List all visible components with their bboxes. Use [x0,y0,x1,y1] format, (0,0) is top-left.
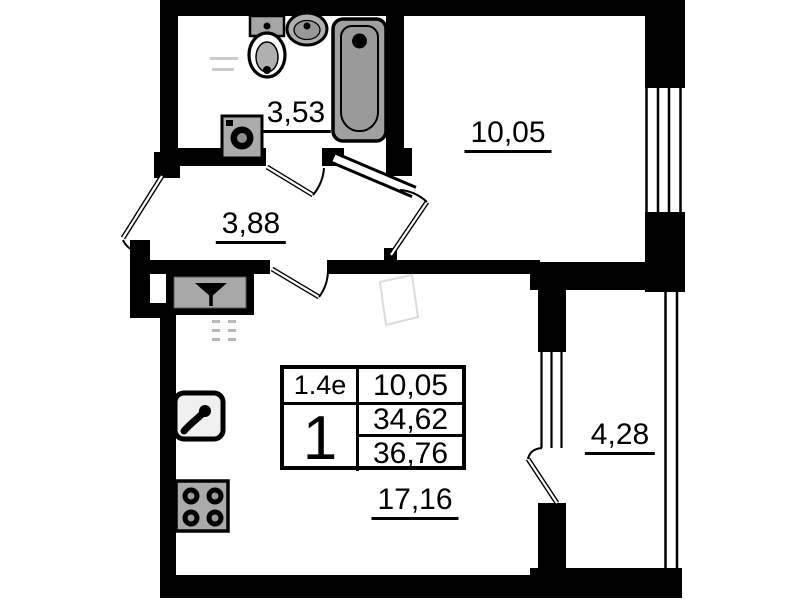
kitchen-sink-fixture [175,393,223,439]
bedroom-window [645,88,685,212]
table-cell-area-without-balcony: 34,62 [356,402,462,434]
balcony-window [538,352,566,448]
floor-plan: 3,53 10,05 3,88 17,16 4,28 1.4e 10,05 1 … [0,0,799,600]
apartment-info-table: 1.4e 10,05 1 34,62 36,76 [280,365,466,470]
table-cell-room-count: 1 [284,402,356,471]
living-room-door [272,269,328,297]
table-cell-plan-code: 1.4e [284,369,356,402]
room-label-bathroom: 3,53 [261,98,331,133]
room-label-hallway: 3,88 [216,209,286,244]
toilet-fixture [249,16,285,77]
room-label-living-room: 17,16 [371,485,458,520]
vent-shaft-fixture [174,277,246,308]
vent-dashes [212,320,236,341]
dimension-marks [210,57,238,71]
table-cell-total-area: 36,76 [356,434,462,471]
door-ghost-outline [380,275,418,325]
balcony-glazing [666,290,678,568]
bathroom-door [267,167,324,195]
table-cell-living-area: 10,05 [356,369,462,402]
room-label-bedroom: 10,05 [464,118,551,153]
wash-basin-fixture [287,13,327,45]
stove-fixture [176,481,228,531]
room-label-balcony: 4,28 [585,420,655,455]
washing-machine-fixture [222,116,262,158]
bedroom-door [391,190,427,255]
balcony-door [528,448,557,503]
bathtub-fixture [333,19,386,141]
